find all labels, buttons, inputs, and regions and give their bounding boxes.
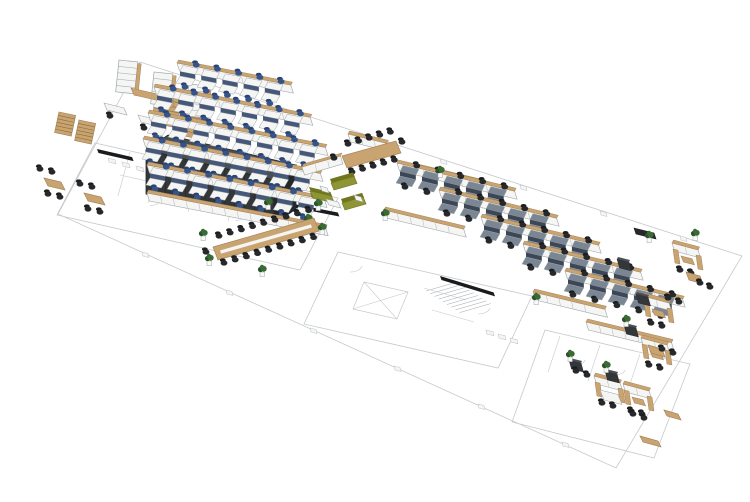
core-center-linework-arc	[478, 308, 490, 314]
core-left-linework-para	[136, 166, 144, 172]
lounge-sofa	[330, 172, 357, 190]
core-center-linework-para	[486, 330, 494, 336]
core-center-linework-para	[498, 334, 506, 340]
core-center-linework	[304, 252, 532, 368]
office-floorplan-render	[0, 0, 750, 502]
wood-slat-screens-slats	[75, 120, 96, 144]
booth-zone-right-table	[664, 410, 681, 420]
booth-zone-right-booth	[672, 240, 703, 276]
core-center-linework-stairs	[426, 282, 491, 313]
wall-bars-bar	[440, 276, 495, 296]
core-left-linework-para	[108, 158, 116, 164]
cafe-tables-left-chairs	[36, 164, 104, 214]
core-center-linework-para	[510, 338, 518, 344]
canteen-long-table-chairs	[202, 247, 210, 254]
left-desk-block	[142, 60, 328, 236]
3d-viewport[interactable]	[0, 0, 750, 502]
core-center-linework-elevator	[353, 282, 408, 319]
core-center-linework-arc	[350, 266, 362, 272]
booth-zone-right-table	[640, 436, 661, 447]
core-center-linework-poly	[304, 252, 532, 368]
meeting-area	[330, 127, 406, 174]
cafe-tables-left-table	[44, 178, 65, 190]
core-left-linework-para	[122, 162, 130, 168]
cafe-tables-left-table	[84, 193, 105, 205]
wood-slat-screens-slats	[55, 112, 76, 136]
